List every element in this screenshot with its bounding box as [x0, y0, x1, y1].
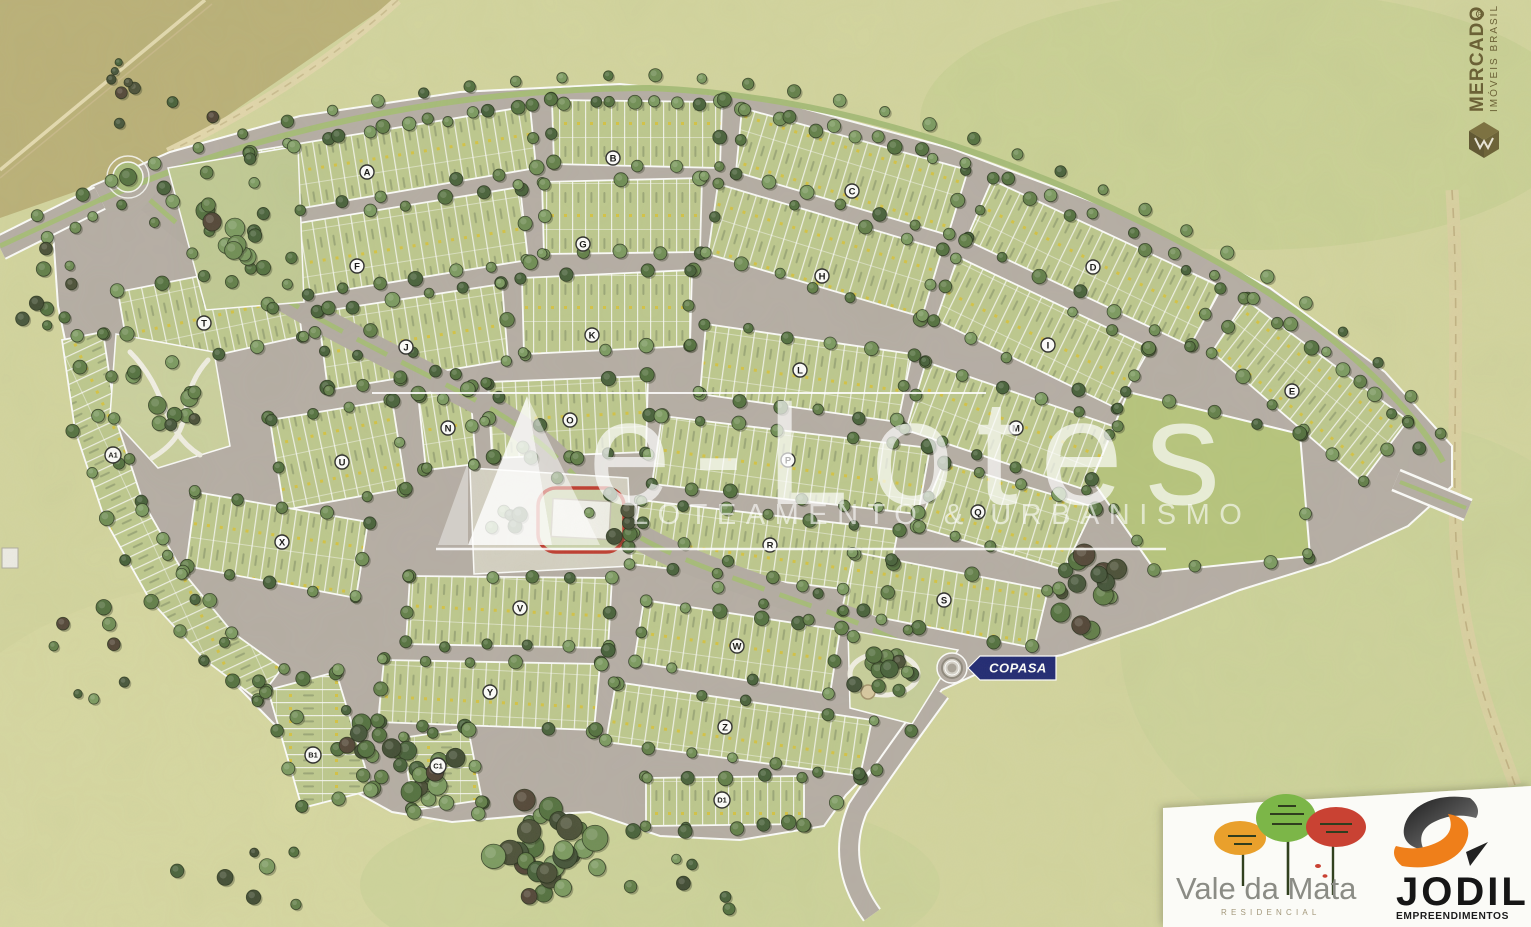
block-marker-F: F [350, 259, 364, 273]
block-marker-X: X [275, 535, 289, 549]
block-letter: J [403, 342, 408, 353]
block-marker-A1: A1 [105, 447, 121, 463]
block-marker-J: J [399, 340, 413, 354]
vale-da-mata-subtitle: RESIDENCIAL [1221, 908, 1321, 917]
block-letter: B [610, 153, 617, 164]
watermark-subtitle: LOTEAMENTO & URBANISMO [632, 499, 1251, 531]
brand-card: Vale da Mata RESIDENCIAL JODIL EMPREENDI… [1163, 786, 1531, 927]
block-marker-C1: C1 [430, 758, 446, 774]
block-letter: X [279, 537, 286, 548]
block-letter: G [579, 239, 586, 250]
copasa-sign-label: COPASA [989, 661, 1047, 676]
block-marker-W: W [730, 639, 744, 653]
block-letter: C1 [433, 762, 443, 771]
farm-building [2, 548, 18, 568]
copasa-sign: COPASA [968, 656, 1056, 680]
block-letter: U [339, 457, 346, 468]
block-marker-E: E [1285, 384, 1299, 398]
block-marker-D1: D1 [714, 792, 730, 808]
block-letter: Z [722, 722, 728, 733]
block-letter: E [1289, 386, 1295, 397]
block-letter: A1 [108, 451, 118, 460]
block-marker-N: N [441, 421, 455, 435]
tree-canopy-red [1306, 807, 1366, 847]
block-marker-A: A [360, 165, 374, 179]
block-letter: V [517, 603, 524, 614]
block-marker-B1: B1 [305, 747, 321, 763]
block-marker-S: S [937, 593, 951, 607]
jodil-name: JODIL [1396, 870, 1529, 914]
block-marker-O: O [563, 413, 577, 427]
block-marker-I: I [1041, 338, 1055, 352]
block-letter: C [849, 186, 856, 197]
block-marker-K: K [585, 328, 599, 342]
block-marker-Z: Z [718, 720, 732, 734]
mercado-logo-line1: MERCADO [1467, 5, 1488, 112]
block-letter: B1 [308, 751, 318, 760]
block-letter: K [589, 330, 596, 341]
block-letter: I [1047, 340, 1050, 351]
block-letter: N [445, 423, 452, 434]
block-G [542, 178, 702, 254]
falling-leaf [1315, 864, 1321, 868]
block-marker-B: B [606, 151, 620, 165]
mercado-imoveis-logo: MERCADO IMÓVEIS BRASIL R [1467, 4, 1500, 158]
block-marker-U: U [335, 455, 349, 469]
block-letter: O [566, 415, 573, 426]
jodil-subtitle: EMPREENDIMENTOS [1396, 911, 1509, 922]
block-marker-T: T [197, 316, 211, 330]
block-letter: Y [487, 687, 494, 698]
block-letter: S [941, 595, 947, 606]
masterplan-map: COPASA ABCDEFGHIJKLMNOPQRSTUVWXYZA1B1C1D… [0, 0, 1531, 927]
block-letter: D1 [717, 796, 727, 805]
registered-mark-r: R [1478, 12, 1482, 18]
water-tank-core [948, 664, 957, 673]
block-marker-H: H [815, 269, 829, 283]
masterplan-screenshot: COPASA ABCDEFGHIJKLMNOPQRSTUVWXYZA1B1C1D… [0, 0, 1531, 927]
block-letter: D [1090, 262, 1097, 273]
mercado-logo-line2: IMÓVEIS BRASIL [1487, 4, 1500, 112]
vale-da-mata-name: Vale da Mata [1176, 871, 1357, 906]
block-marker-Y: Y [483, 685, 497, 699]
block-letter: F [354, 261, 360, 272]
block-V [406, 576, 612, 648]
block-marker-G: G [576, 237, 590, 251]
block-letter: T [201, 318, 207, 329]
block-marker-C: C [845, 184, 859, 198]
block-letter: H [819, 271, 826, 282]
block-letter: W [733, 641, 742, 652]
block-marker-D: D [1086, 260, 1100, 274]
block-letter: A [364, 167, 371, 178]
block-marker-V: V [513, 601, 527, 615]
tree-canopy-green [1256, 794, 1316, 842]
block-K [522, 270, 692, 354]
